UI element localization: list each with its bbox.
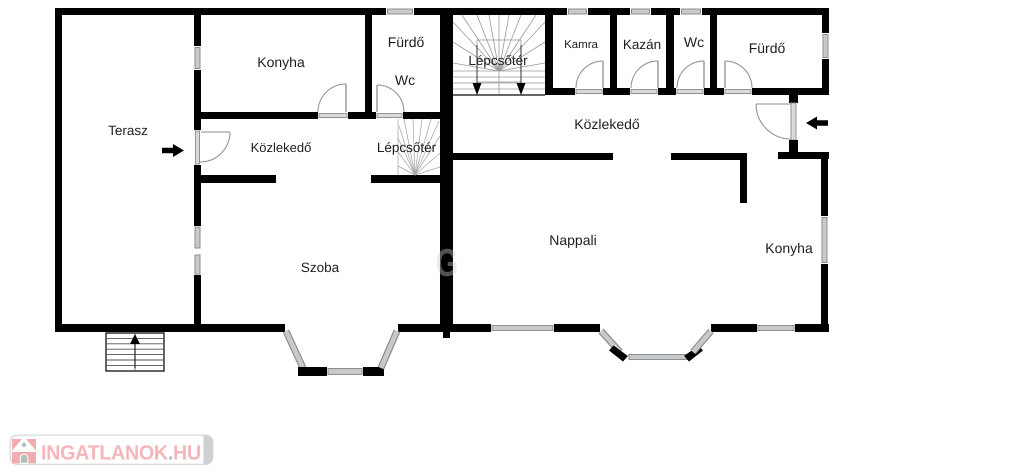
svg-text:Szoba: Szoba (301, 260, 340, 275)
svg-text:Közlekedő: Közlekedő (251, 140, 312, 155)
svg-text:Terasz: Terasz (108, 123, 148, 138)
svg-text:Nappali: Nappali (549, 232, 596, 248)
svg-text:Kazán: Kazán (623, 37, 661, 52)
svg-text:Kamra: Kamra (564, 39, 598, 51)
svg-text:Konyha: Konyha (765, 240, 813, 256)
svg-text:Wc: Wc (395, 72, 415, 88)
svg-text:G: G (436, 242, 459, 285)
svg-text:Fürdő: Fürdő (388, 34, 425, 50)
svg-text:Lépcsőtér: Lépcsőtér (377, 140, 437, 155)
svg-text:Konyha: Konyha (257, 54, 305, 70)
svg-text:Wc: Wc (684, 34, 704, 50)
svg-text:Közlekedő: Közlekedő (574, 116, 640, 132)
svg-text:Fürdő: Fürdő (749, 40, 786, 56)
svg-text:INGATLANOK.HU: INGATLANOK.HU (41, 442, 201, 465)
svg-text:Lépcsőtér: Lépcsőtér (468, 53, 528, 68)
